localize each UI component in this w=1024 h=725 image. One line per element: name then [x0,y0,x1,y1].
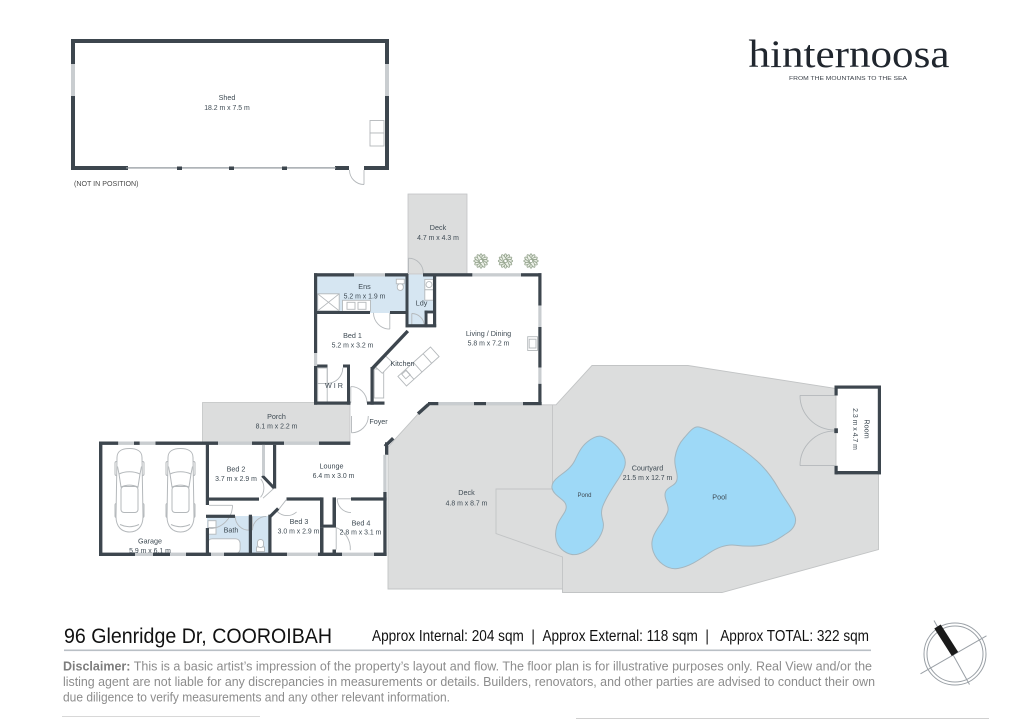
svg-text:18.2 m x 7.5 m: 18.2 m x 7.5 m [204,105,250,112]
svg-text:listing agent are not liable f: listing agent are not liable for any dis… [63,675,875,689]
svg-text:4.8 m x 8.7 m: 4.8 m x 8.7 m [446,501,488,508]
svg-text:5.2 m x 3.2 m: 5.2 m x 3.2 m [332,343,374,350]
svg-text:Foyer: Foyer [369,417,388,426]
svg-text:Bed 3: Bed 3 [290,517,309,526]
svg-text:6.4 m x 3.0 m: 6.4 m x 3.0 m [313,473,355,480]
svg-text:3.0 m x 2.9 m: 3.0 m x 2.9 m [278,529,320,536]
svg-text:Porch: Porch [267,412,286,421]
svg-text:Bath: Bath [224,526,239,535]
svg-text:2.3 m x 4.7 m: 2.3 m x 4.7 m [851,408,858,450]
svg-text:Bed 4: Bed 4 [352,519,371,528]
svg-text:5.9 m x 6.1 m: 5.9 m x 6.1 m [129,548,171,555]
svg-text:Ens: Ens [358,282,371,291]
svg-text:Kitchen: Kitchen [391,359,415,368]
svg-text:21.5 m x 12.7 m: 21.5 m x 12.7 m [623,475,673,482]
svg-text:FROM THE MOUNTAINS TO THE SEA: FROM THE MOUNTAINS TO THE SEA [789,76,908,82]
svg-text:96 Glenridge Dr, COOROIBAH: 96 Glenridge Dr, COOROIBAH [64,624,332,648]
svg-text:Bed 1: Bed 1 [343,331,362,340]
svg-text:Living / Dining: Living / Dining [466,329,511,338]
svg-text:Deck: Deck [458,488,475,497]
svg-text:W I R: W I R [325,381,343,390]
svg-text:Lounge: Lounge [320,462,344,471]
svg-text:Garage: Garage [138,537,162,546]
svg-text:Pond: Pond [577,493,591,499]
svg-text:Pool: Pool [712,493,727,502]
svg-text:Bed 2: Bed 2 [227,465,246,474]
svg-text:Disclaimer: This is a basic ar: Disclaimer: This is a basic artist’s imp… [63,660,872,674]
svg-text:Courtyard: Courtyard [632,464,664,473]
svg-text:3.7 m x 2.9 m: 3.7 m x 2.9 m [215,476,257,483]
svg-text:(NOT IN POSITION): (NOT IN POSITION) [74,179,139,188]
svg-text:hinternoosa: hinternoosa [749,33,950,76]
svg-text:Approx Internal: 204 sqm | A: Approx Internal: 204 sqm | Approx Extern… [372,628,869,645]
svg-text:Deck: Deck [430,223,447,232]
svg-text:2.8 m x 3.1 m: 2.8 m x 3.1 m [340,530,382,537]
svg-text:Ldy: Ldy [416,299,428,308]
svg-text:8.1 m x 2.2 m: 8.1 m x 2.2 m [256,424,298,431]
svg-text:5.2 m x 1.9 m: 5.2 m x 1.9 m [344,294,386,301]
svg-text:4.7 m x 4.3 m: 4.7 m x 4.3 m [417,235,459,242]
svg-text:Shed: Shed [219,93,236,102]
svg-text:due diligence to verify measur: due diligence to verify measurements and… [63,691,450,705]
svg-text:5.8 m x 7.2 m: 5.8 m x 7.2 m [468,341,510,348]
svg-text:Room: Room [863,419,872,438]
